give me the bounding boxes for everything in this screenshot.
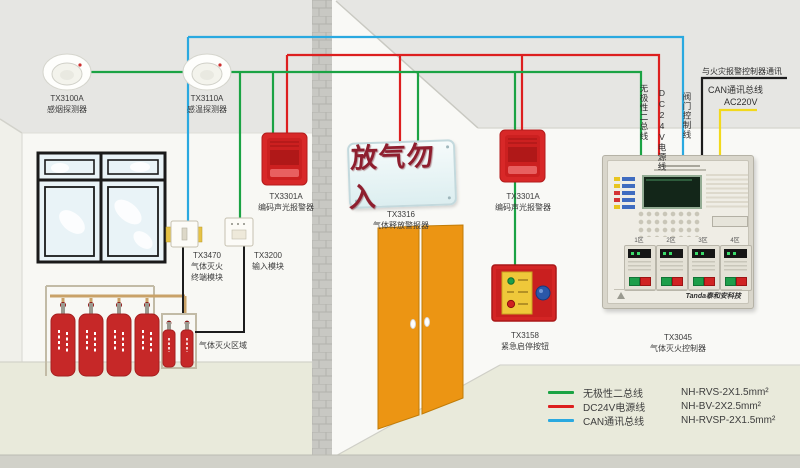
zone-label: 4区 — [730, 235, 739, 244]
input-module-device — [225, 218, 253, 246]
emergency-button-device — [492, 265, 556, 321]
led-indicator — [614, 191, 620, 195]
zone-stop-button[interactable] — [704, 277, 715, 286]
zone-start-button[interactable] — [725, 277, 736, 286]
zone-label: 1区 — [634, 235, 643, 244]
zone-label: 3区 — [698, 235, 707, 244]
led-indicator — [614, 198, 620, 202]
led-indicator — [614, 184, 620, 188]
riser-label-can: CAN通讯总线 — [708, 83, 763, 96]
zone-start-button[interactable] — [629, 277, 640, 286]
legend-spec: NH-BV-2X2.5mm² — [681, 401, 761, 412]
terminal-module-name1: 气体灭火 — [191, 261, 223, 272]
legend-spec: NH-RVSP-2X1.5mm² — [681, 415, 775, 426]
brick-wall-column — [312, 0, 332, 455]
zone-control-module — [720, 245, 752, 291]
legend-label: CAN通讯总线 — [583, 413, 681, 428]
sounder-left-name: 编码声光报警器 — [258, 202, 314, 213]
gas-extinguishing-controller: 1区 2区 3区 4区 — [602, 155, 754, 309]
release-alarm-name: 气体释放警报器 — [373, 220, 429, 231]
riser-label-ac: AC220V — [724, 97, 758, 107]
zone-control-module — [624, 245, 656, 291]
sounder-left-model: TX3301A — [269, 191, 302, 202]
riser-label-valve: 阀门控制线 — [681, 92, 692, 140]
window — [38, 153, 165, 262]
smoke-detector — [43, 54, 91, 90]
zone-start-button[interactable] — [693, 277, 704, 286]
emergency-button-model: TX3158 — [511, 330, 539, 341]
heat-detector — [183, 54, 231, 90]
sounder-strobe-right — [500, 130, 545, 182]
riser-label-power: DC24V电源线 — [656, 88, 667, 172]
zone-start-button[interactable] — [661, 277, 672, 286]
door-handle-left — [411, 320, 416, 329]
zone-stop-button[interactable] — [672, 277, 683, 286]
wiring-legend: 无极性二总线 NH-RVS-2X1.5mm² DC24V电源线 NH-BV-2X… — [548, 385, 775, 427]
fire-suppression-system-diagram: 放气勿入 1区 2区 3区 4区 — [0, 0, 800, 468]
abort-button — [536, 286, 550, 300]
heat-detector-model: TX3110A — [191, 93, 224, 104]
controller-keypad[interactable] — [638, 211, 700, 237]
sounder-strobe-left — [262, 133, 307, 185]
zone-stop-button[interactable] — [736, 277, 747, 286]
zone-area-label: 气体灭火区域 — [199, 340, 247, 351]
terminal-module-model: TX3470 — [193, 250, 221, 261]
controller-face: 1区 2区 3区 4区 — [607, 160, 749, 304]
gas-release-sign-text: 放气勿入 — [349, 133, 456, 215]
zone-label: 2区 — [666, 235, 675, 244]
gas-release-sign: 放气勿入 — [347, 139, 457, 209]
legend-row: DC24V电源线 NH-BV-2X2.5mm² — [548, 399, 775, 413]
controller-indicator-grid — [706, 174, 748, 208]
warning-icon — [617, 292, 625, 299]
door-handle-right — [425, 318, 430, 327]
controller-name: 气体灭火控制器 — [650, 343, 706, 354]
led-indicator — [614, 177, 620, 181]
legend-label: DC24V电源线 — [583, 399, 681, 414]
legend-label: 无极性二总线 — [583, 385, 681, 400]
zone-control-module — [656, 245, 688, 291]
controller-model: TX3045 — [664, 332, 692, 343]
emergency-button-name: 紧急启停按钮 — [501, 341, 549, 352]
input-module-name: 输入模块 — [252, 261, 284, 272]
legend-swatch-green — [548, 391, 574, 394]
terminal-module-name2: 终端模块 — [191, 272, 223, 283]
controller-printer-slot — [712, 216, 748, 227]
controller-brand: Tanda泰和安科技 — [686, 291, 741, 301]
riser-label-can-note: 与火灾报警控制器通讯 — [702, 66, 782, 77]
sounder-right-model: TX3301A — [506, 191, 539, 202]
smoke-detector-model: TX3100A — [50, 93, 83, 104]
heat-detector-name: 感温探测器 — [187, 104, 227, 115]
riser-label-bus: 无极性二总线 — [638, 84, 649, 141]
led-indicator — [614, 205, 620, 209]
sounder-right-name: 编码声光报警器 — [495, 202, 551, 213]
input-module-model: TX3200 — [254, 250, 282, 261]
legend-swatch-red — [548, 405, 574, 408]
controller-lcd-screen — [642, 175, 702, 209]
zone-stop-button[interactable] — [640, 277, 651, 286]
legend-swatch-cyan — [548, 419, 574, 422]
legend-row: 无极性二总线 NH-RVS-2X1.5mm² — [548, 385, 775, 399]
release-alarm-model: TX3316 — [387, 209, 415, 220]
legend-spec: NH-RVS-2X1.5mm² — [681, 387, 769, 398]
legend-row: CAN通讯总线 NH-RVSP-2X1.5mm² — [548, 413, 775, 427]
smoke-detector-name: 感烟探测器 — [47, 104, 87, 115]
zone-control-module — [688, 245, 720, 291]
terminal-module-device — [166, 221, 202, 247]
